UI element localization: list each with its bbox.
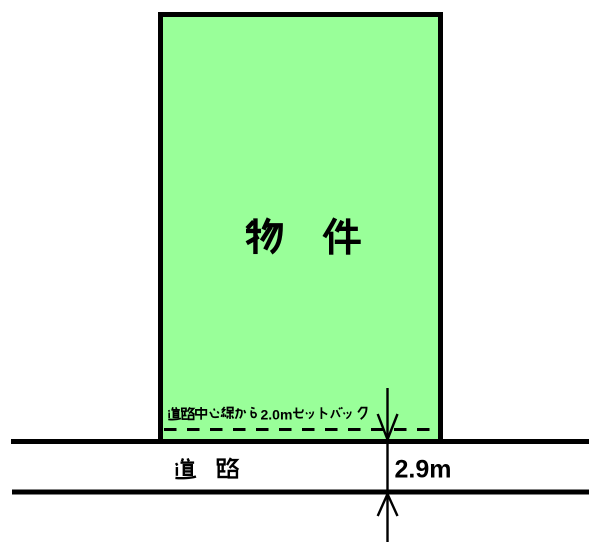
svg-text:2.9m: 2.9m bbox=[395, 456, 452, 484]
svg-text:2.0m: 2.0m bbox=[261, 407, 293, 423]
